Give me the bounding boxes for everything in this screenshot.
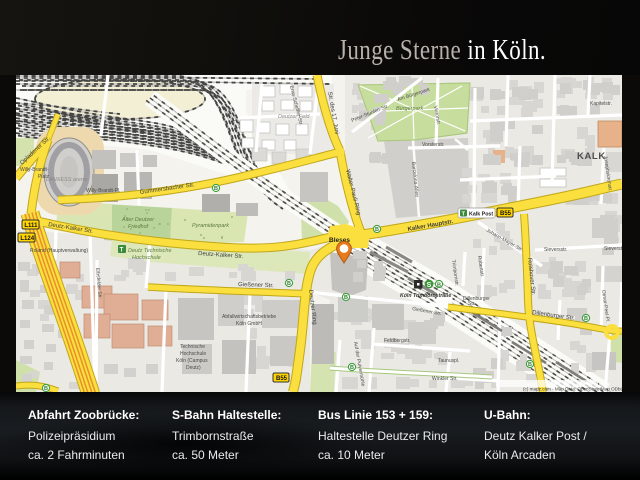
svg-text:T: T <box>120 248 124 254</box>
svg-text:Hochschule: Hochschule <box>180 351 206 357</box>
svg-text:B: B <box>287 281 291 287</box>
svg-text:B: B <box>584 316 588 322</box>
svg-text:Roland (Hauptverwaltung): Roland (Hauptverwaltung) <box>30 248 88 254</box>
svg-text:Kalk Post: Kalk Post <box>469 211 493 217</box>
svg-text:Vorsterstr.: Vorsterstr. <box>422 142 445 148</box>
svg-text:Str.: Str. <box>468 301 476 307</box>
svg-text:Willy-Brandt-Pl.: Willy-Brandt-Pl. <box>86 188 120 194</box>
svg-text:Kapitelstr.: Kapitelstr. <box>590 101 612 107</box>
svg-text:Deutzer Feld: Deutzer Feld <box>278 114 310 120</box>
svg-text:B: B <box>214 186 218 192</box>
svg-text:B: B <box>528 362 532 368</box>
svg-text:Abfallwirtschaftsbetriebe: Abfallwirtschaftsbetriebe <box>222 314 276 320</box>
svg-text:L111: L111 <box>24 223 38 229</box>
svg-text:Taunuspl.: Taunuspl. <box>438 358 459 364</box>
svg-text:Pyramidenpark: Pyramidenpark <box>192 223 229 229</box>
svg-text:Sieversstr.: Sieversstr. <box>544 247 567 253</box>
svg-text:(c) mapz.com - Map Data: OpenS: (c) mapz.com - Map Data: OpenStreetMap O… <box>523 386 622 391</box>
svg-text:Sieverstr.: Sieverstr. <box>604 246 622 252</box>
svg-text:Friedhof: Friedhof <box>128 224 149 230</box>
svg-text:Deutz Technische: Deutz Technische <box>128 248 172 254</box>
svg-text:B: B <box>375 227 379 233</box>
svg-text:B: B <box>437 282 441 288</box>
svg-text:LANXESS arena: LANXESS arena <box>46 177 87 183</box>
svg-text:Gießener Str.: Gießener Str. <box>238 282 274 289</box>
svg-text:Bürgerpark: Bürgerpark <box>396 106 423 112</box>
svg-text:KALK: KALK <box>577 151 606 162</box>
svg-text:Technische: Technische <box>180 344 205 350</box>
svg-text:Hochschule: Hochschule <box>132 255 161 261</box>
svg-text:Köln Trimbornstraße: Köln Trimbornstraße <box>400 293 451 299</box>
svg-text:L124: L124 <box>20 236 34 242</box>
svg-text:Köln GmbH: Köln GmbH <box>236 321 262 327</box>
svg-text:Köln (Campus: Köln (Campus <box>176 358 208 364</box>
svg-text:S: S <box>427 282 432 289</box>
svg-text:Deutz): Deutz) <box>186 365 201 371</box>
svg-text:B55: B55 <box>500 211 512 217</box>
svg-text:Winkler Str.: Winkler Str. <box>432 376 458 382</box>
svg-text:Willy-Brandt-: Willy-Brandt- <box>20 167 49 173</box>
svg-text:B55: B55 <box>276 376 288 382</box>
svg-text:Alter Deutzer: Alter Deutzer <box>121 217 155 223</box>
svg-text:B: B <box>344 295 348 301</box>
svg-text:Feldbergstr.: Feldbergstr. <box>384 338 410 344</box>
svg-text:B: B <box>350 365 354 371</box>
